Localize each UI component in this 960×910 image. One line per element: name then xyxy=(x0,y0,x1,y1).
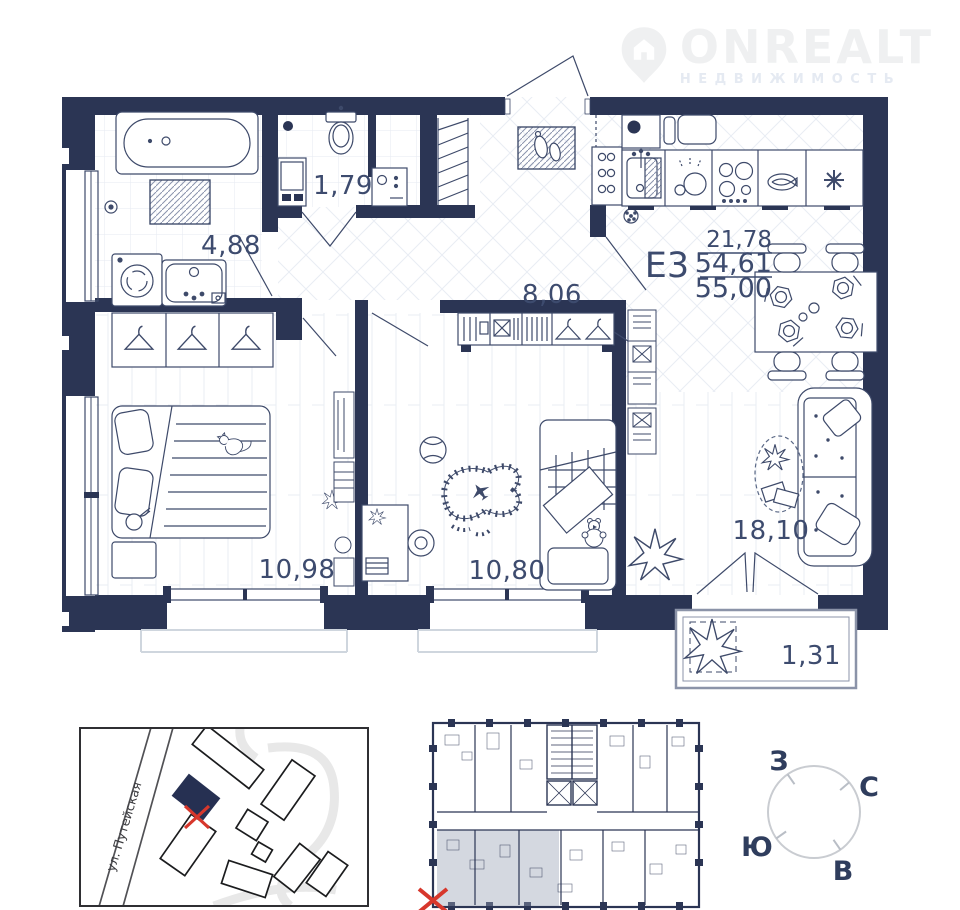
bath-mat xyxy=(150,180,210,224)
compass: З С Ю В xyxy=(741,746,879,887)
entry-mat xyxy=(518,127,575,169)
room-label-bedroom: 10,98 xyxy=(259,555,336,585)
compass-east-label: В xyxy=(833,856,854,887)
compass-south-label: Ю xyxy=(741,832,773,863)
bathtub xyxy=(116,112,258,174)
room-label-bathroom: 4,88 xyxy=(201,231,261,261)
wc-cabinet xyxy=(278,158,306,206)
compass-ticks xyxy=(776,774,849,849)
floorplan-drawing: 4,88 1,79 8,06 10,98 10,80 18,10 1,31 Е3… xyxy=(0,0,960,910)
toilet xyxy=(326,106,356,154)
closet-ladder xyxy=(438,118,468,205)
fridge-snowflake-icon xyxy=(824,170,844,190)
floorplan-page: ONREALT НЕДВИЖИМОСТЬ xyxy=(0,0,960,910)
wall-shelves xyxy=(628,310,656,454)
floor-minimap xyxy=(419,719,703,910)
wc-sink xyxy=(372,168,407,206)
bedroom-wardrobe xyxy=(112,313,273,367)
compass-north-label: С xyxy=(859,772,879,803)
room-label-wc: 1,79 xyxy=(313,171,373,201)
location-map: ул. Путейская xyxy=(80,724,368,910)
room-label-balcony: 1,31 xyxy=(781,641,841,671)
kitchen-vent-block xyxy=(622,115,716,148)
toy-ball xyxy=(420,437,446,463)
shoe-cabinet xyxy=(592,147,622,205)
kids-bed xyxy=(540,420,616,590)
unit-area-total: 55,00 xyxy=(695,273,772,304)
room-label-kids: 10,80 xyxy=(469,556,546,586)
washing-machine xyxy=(112,254,162,306)
compass-west-label: З xyxy=(769,746,788,777)
room-label-living: 18,10 xyxy=(733,516,810,546)
unit-code: Е3 xyxy=(645,246,689,286)
wc-vent-dot xyxy=(283,121,293,131)
room-label-hall: 8,06 xyxy=(522,280,582,310)
bathroom-sink xyxy=(162,260,226,306)
